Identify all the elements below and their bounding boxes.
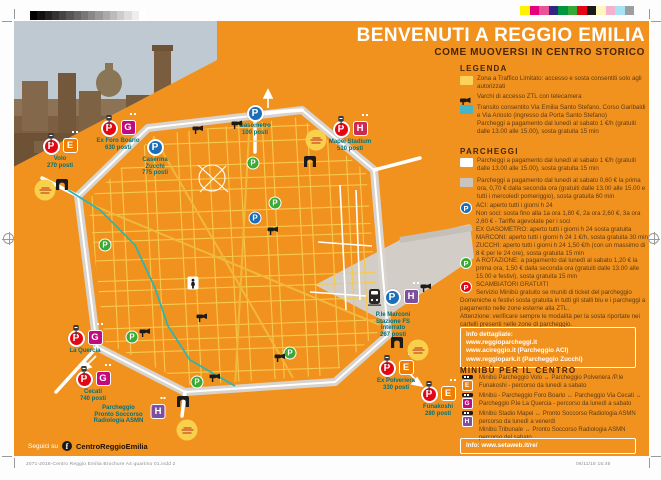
color-step: [568, 6, 578, 15]
social-follow: Seguici su f CentroReggioEmilia: [28, 441, 148, 451]
minibu-info-box: Info: www.setaweb.it/re/: [460, 438, 636, 454]
follow-label: Seguici su: [28, 443, 58, 450]
parking-info-box: Info dettagliate: www.reggioparcheggi.it…: [460, 327, 636, 368]
grayscale-step: [139, 11, 146, 20]
grayscale-step: [30, 11, 37, 20]
color-step: [606, 6, 616, 15]
white-stall-swatch: [460, 158, 473, 167]
parcheggi-item-text: Parcheggi a pagamento dal lunedì al saba…: [477, 177, 648, 201]
color-step: [558, 6, 568, 15]
parking-note: Domeniche e festivi sosta gratuita in tu…: [460, 297, 648, 329]
minibus-line-icon: G: [460, 393, 474, 409]
legend-item-row: Zona a Traffico Limitato: accesso e sost…: [460, 75, 648, 91]
grayscale-calibration-bar: [30, 11, 146, 20]
parcheggi-item-text: ACI: aperto tutti i giorni h 24 Non soci…: [476, 202, 648, 258]
parcheggi-heading: PARCHEGGI: [460, 147, 519, 156]
crop-mark: [14, 9, 15, 19]
crop-mark: [2, 456, 12, 457]
color-step: [520, 6, 530, 15]
legend-heading: LEGENDA: [460, 64, 508, 73]
transit-zone-swatch: [460, 105, 473, 114]
color-step: [615, 6, 625, 15]
color-step: [596, 6, 606, 15]
crop-mark: [651, 21, 661, 22]
parcheggi-item-text: A ROTAZIONE: a pagamento dal lunedì al s…: [476, 257, 648, 281]
crop-mark: [14, 458, 15, 468]
registration-mark-right: [648, 233, 659, 244]
brochure-proof-page: { "header": { "title": "BENVENUTI A REGG…: [0, 0, 661, 480]
registration-mark-left: [3, 233, 14, 244]
minibus-line-icon: E: [460, 375, 474, 391]
crop-mark: [2, 21, 12, 22]
grayscale-step: [45, 11, 52, 20]
crop-mark: [651, 456, 661, 457]
parcheggi-item-row: PA ROTAZIONE: a pagamento dal lunedì al …: [460, 257, 648, 281]
legend-item-text: Varchi di accesso ZTL con telecamera: [477, 93, 648, 101]
minibus-icon: [462, 411, 473, 415]
color-step: [539, 6, 549, 15]
legend-item-text: Zona a Traffico Limitato: accesso e sost…: [477, 75, 648, 91]
grayscale-step: [81, 11, 88, 20]
grayscale-step: [103, 11, 110, 20]
minibu-item-text: Minibù Parcheggio Volo ↔ Parcheggio Polv…: [479, 375, 648, 391]
grayscale-step: [88, 11, 95, 20]
minibus-icon: [462, 375, 473, 379]
facebook-page-name: CentroReggioEmilia: [76, 442, 148, 451]
legend-item-row: Transito consentito Via Emilia Santo Ste…: [460, 104, 648, 136]
blue-parking-icon: P: [460, 202, 472, 214]
color-step: [577, 6, 587, 15]
grayscale-step: [59, 11, 66, 20]
green-parking-icon: P: [460, 257, 472, 269]
parcheggi-item-row: Parcheggi a pagamento dal lunedì al saba…: [460, 157, 648, 173]
facebook-icon: f: [62, 441, 72, 451]
minibu-item-text: Minibù Stadio Mapei ↔ Pronto Soccorso Ra…: [479, 411, 648, 427]
color-step: [549, 6, 559, 15]
page-title: BENVENUTI A REGGIO EMILIA: [357, 25, 645, 47]
parcheggi-item-row: PSCAMBIATORI GRATUITI Servizio Minibù gr…: [460, 281, 648, 297]
minibu-heading: MINIBÙ PER IL CENTRO: [460, 366, 576, 375]
grayscale-step: [74, 11, 81, 20]
grayscale-step: [132, 11, 139, 20]
page-subtitle: COME MUOVERSI IN CENTRO STORICO: [434, 47, 645, 58]
minibu-item-row: HMinibù Stadio Mapei ↔ Pronto Soccorso R…: [460, 411, 648, 427]
grayscale-step: [110, 11, 117, 20]
ztl-zone-swatch: [460, 76, 473, 85]
print-timestamp: 06/11/18 15:46: [576, 462, 610, 467]
gray-stall-swatch: [460, 178, 473, 187]
minibus-line-icon: H: [460, 411, 474, 427]
minibu-item-text: Minibù - Parcheggio Foro Boario ↔ Parche…: [479, 393, 648, 409]
grayscale-step: [124, 11, 131, 20]
parcheggi-item-text: Parcheggi a pagamento dal lunedì al saba…: [477, 157, 648, 173]
crop-mark: [649, 458, 650, 468]
minibu-item-row: EMinibù Parcheggio Volo ↔ Parcheggio Pol…: [460, 375, 648, 391]
color-step: [625, 6, 635, 15]
minibu-item-row: GMinibù - Parcheggio Foro Boario ↔ Parch…: [460, 393, 648, 409]
minibus-icon: [462, 393, 473, 397]
crop-mark: [649, 9, 650, 19]
legend-item-text: Transito consentito Via Emilia Santo Ste…: [477, 104, 648, 136]
parcheggi-item-row: PACI: aperto tutti i giorni h 24 Non soc…: [460, 202, 648, 258]
color-step: [587, 6, 597, 15]
color-step: [530, 6, 540, 15]
parcheggi-item-row: Parcheggi a pagamento dal lunedì al saba…: [460, 177, 648, 201]
grayscale-step: [37, 11, 44, 20]
grayscale-step: [66, 11, 73, 20]
print-filename: 2071-2018-Centro Reggio Emilia Brochure …: [26, 462, 176, 467]
red-parking-icon: P: [460, 281, 472, 293]
grayscale-step: [117, 11, 124, 20]
grayscale-step: [95, 11, 102, 20]
parcheggi-item-text: SCAMBIATORI GRATUITI Servizio Minibù gra…: [476, 281, 648, 297]
color-calibration-bar: [520, 6, 634, 15]
grayscale-step: [52, 11, 59, 20]
